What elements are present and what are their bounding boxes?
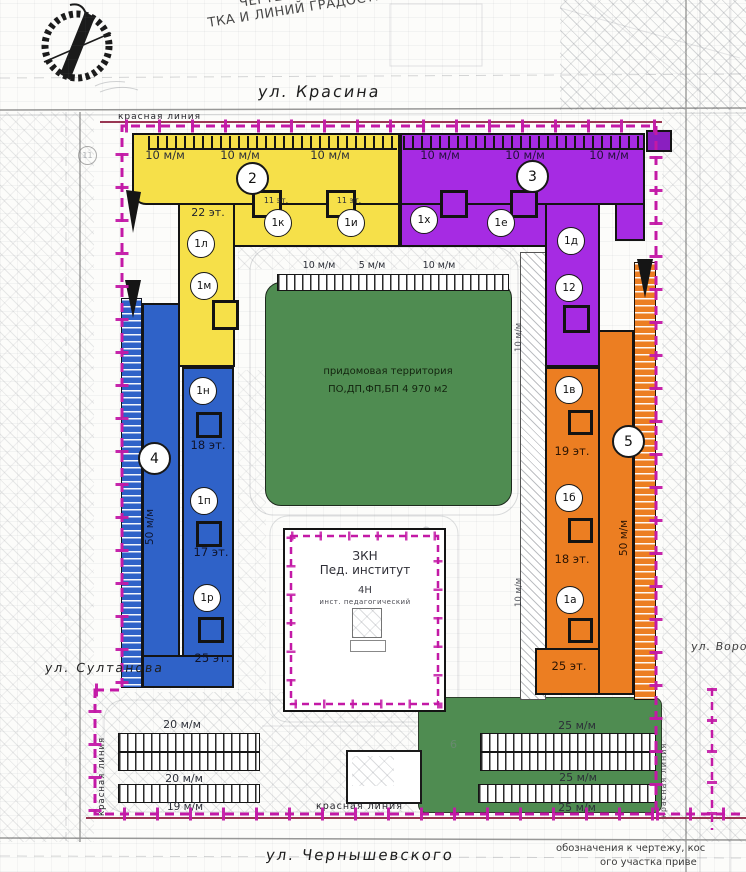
- bottom-parking-left-label1: 20 м/м: [142, 718, 222, 731]
- compass-icon: [44, 4, 111, 80]
- building-4-slab: [142, 303, 180, 688]
- institute-name: Пед. институт: [300, 563, 430, 577]
- section-badge-1b: 1б: [555, 484, 583, 512]
- drawing-title: ЧЕРТЕЖ ГРАДОСТРОИТЕЛЬНОГО ПЛА ТКА И ЛИНИ…: [238, 0, 510, 26]
- b5-floors-1b: 18 эт.: [548, 552, 596, 566]
- section-badge-1n: 1н: [189, 377, 217, 405]
- b2-notch-1m: [212, 300, 239, 330]
- bottom-parking-left-label2: 20 м/м: [144, 772, 224, 785]
- bottom-parking-left-row2: [118, 752, 260, 771]
- b4-side-parking-label: 50 м/м: [144, 509, 156, 545]
- hatch-left-strip: [0, 112, 94, 842]
- b5-notch-1v: [568, 410, 593, 435]
- red-line-label-right: красная линия: [659, 743, 668, 818]
- inner-parking-top-label-1: 10 м/м: [295, 260, 343, 271]
- hatch-top-right: [560, 0, 746, 110]
- building-5-slab: [598, 330, 634, 695]
- inner-parking-right-strip: [520, 252, 546, 700]
- b4-floors-1r: 25 эт.: [188, 651, 236, 665]
- institute-code: ЗКН: [300, 549, 430, 563]
- b3-parking-label-2: 10 м/м: [495, 148, 555, 162]
- b3-notch-3: [563, 305, 590, 333]
- section-badge-1h: 1х: [410, 206, 438, 234]
- building-3-number-badge: 3: [516, 160, 549, 193]
- b4-floors-1p: 17 эт.: [187, 545, 235, 559]
- section-badge-1v: 1в: [555, 376, 583, 404]
- b2-floors-1i: 11 эт.: [327, 196, 371, 205]
- red-line-label-left: красная линия: [97, 737, 107, 816]
- b5-side-parking-label: 50 м/м: [618, 520, 630, 556]
- parcel-number-6: 6: [450, 738, 457, 751]
- section-badge-1r: 1р: [193, 584, 221, 612]
- b5-notch-1a: [568, 618, 593, 643]
- b3-parking-label-3: 10 м/м: [578, 148, 640, 162]
- bottom-parking-right-row2: [480, 752, 656, 771]
- street-name-left: ул. Султанова: [44, 660, 165, 675]
- inner-parking-right-label-2: 10 м/м: [514, 578, 524, 607]
- section-badge-12: 12: [555, 274, 583, 302]
- b2-parking-label-2: 10 м/м: [210, 148, 270, 162]
- b5-notch-1b: [568, 518, 593, 543]
- b4-notch-1n: [196, 412, 222, 438]
- institute-inner-detail: [350, 640, 386, 652]
- bottom-parking-right-label2: 25 м/м: [538, 771, 618, 784]
- b2-parking-label-1: 10 м/м: [135, 148, 195, 162]
- inner-parking-top-label-2: 5 м/м: [350, 260, 394, 271]
- inner-parking-right-label-1: 10 м/м: [514, 323, 524, 352]
- bottom-parking-right-label3: 25 м/м: [537, 801, 617, 814]
- red-line-label-bottom: красная линия: [316, 801, 403, 812]
- hatch-right-strip: [662, 112, 746, 842]
- section-badge-1i: 1и: [337, 209, 365, 237]
- b4-notch-1p: [196, 521, 222, 547]
- bottom-parking-right-row1: [480, 733, 656, 752]
- section-badge-1d: 1д: [557, 227, 585, 255]
- institute-sub-label: инст. педагогический: [300, 598, 430, 606]
- b3-notch-2: [510, 190, 538, 218]
- b3-notch-1: [440, 190, 468, 218]
- section-badge-1l: 1л: [187, 230, 215, 258]
- section-badge-1m: 1м: [190, 272, 218, 300]
- b2-parking-label-3: 10 м/м: [300, 148, 360, 162]
- b2-floors-1k: 11 эт.: [254, 196, 298, 205]
- boundary-point-11: 11: [78, 146, 97, 165]
- corner-note-line1: обозначения к чертежу, кос: [556, 843, 705, 854]
- b5-floors-1a: 25 эт.: [545, 659, 593, 673]
- red-line-label-top: красная линия: [118, 112, 201, 122]
- street-name-top: ул. Красина: [257, 82, 382, 101]
- b5-floors-1v: 19 эт.: [548, 444, 596, 458]
- building-4-number-badge: 4: [138, 442, 171, 475]
- bottom-parking-right-label1: 25 м/м: [537, 719, 617, 732]
- b2-tower-floors: 22 эт.: [182, 206, 234, 219]
- section-badge-1a: 1а: [556, 586, 584, 614]
- site-plan: ЧЕРТЕЖ ГРАДОСТРОИТЕЛЬНОГО ПЛА ТКА И ЛИНИ…: [0, 0, 746, 872]
- service-building: [346, 750, 422, 804]
- building-3-end-stub: [615, 203, 645, 241]
- street-name-right: ул. Воровского: [690, 640, 746, 653]
- corner-note-line2: ого участка приве: [600, 857, 697, 868]
- courtyard-label-line1: придомовая территория: [288, 366, 488, 377]
- inner-parking-top-label-3: 10 м/м: [415, 260, 463, 271]
- b4-floors-1n: 18 эт.: [184, 438, 232, 452]
- building-5-number-badge: 5: [612, 425, 645, 458]
- inner-parking-top-row: [277, 274, 509, 291]
- section-badge-1e: 1е: [487, 209, 515, 237]
- building-4-parking-strip: [121, 298, 142, 688]
- building-3-cap: [646, 130, 672, 152]
- building-5-parking-strip: [634, 262, 656, 700]
- courtyard-label-line2: ПО,ДП,ФП,БП 4 970 м2: [288, 384, 488, 395]
- bottom-parking-left-label3: 19 м/м: [147, 801, 223, 813]
- section-badge-1p: 1п: [190, 487, 218, 515]
- building-2-number-badge: 2: [236, 162, 269, 195]
- section-badge-1k: 1к: [264, 209, 292, 237]
- institute-block-code: 4Н: [300, 585, 430, 596]
- hatch-mid-left: [238, 370, 266, 690]
- bottom-parking-left-row1: [118, 733, 260, 752]
- street-name-bottom: ул. Чернышевского: [265, 846, 456, 864]
- b4-notch-1r: [198, 617, 224, 643]
- b3-parking-label-1: 10 м/м: [410, 148, 470, 162]
